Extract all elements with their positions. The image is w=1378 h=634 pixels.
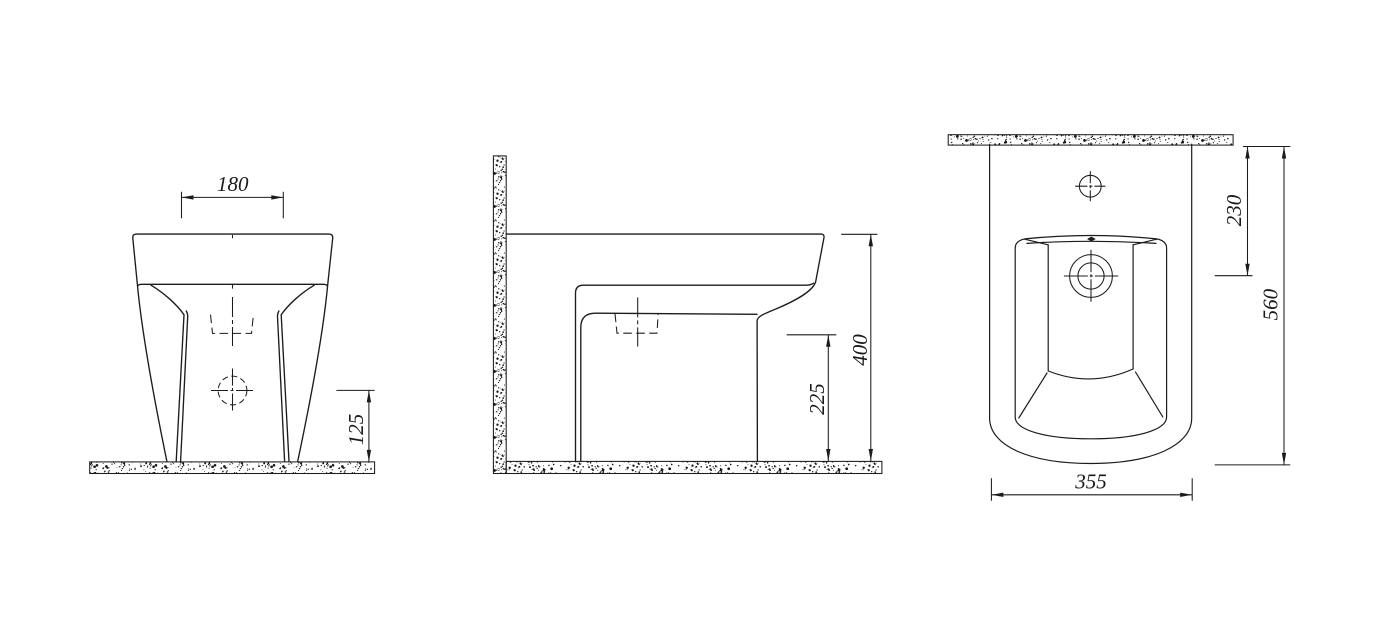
svg-text:355: 355 bbox=[1074, 470, 1107, 494]
svg-text:560: 560 bbox=[1259, 288, 1283, 320]
svg-text:180: 180 bbox=[217, 172, 249, 196]
svg-text:225: 225 bbox=[805, 383, 829, 415]
svg-text:400: 400 bbox=[848, 334, 872, 366]
svg-text:125: 125 bbox=[344, 414, 368, 446]
svg-text:230: 230 bbox=[1222, 194, 1246, 226]
